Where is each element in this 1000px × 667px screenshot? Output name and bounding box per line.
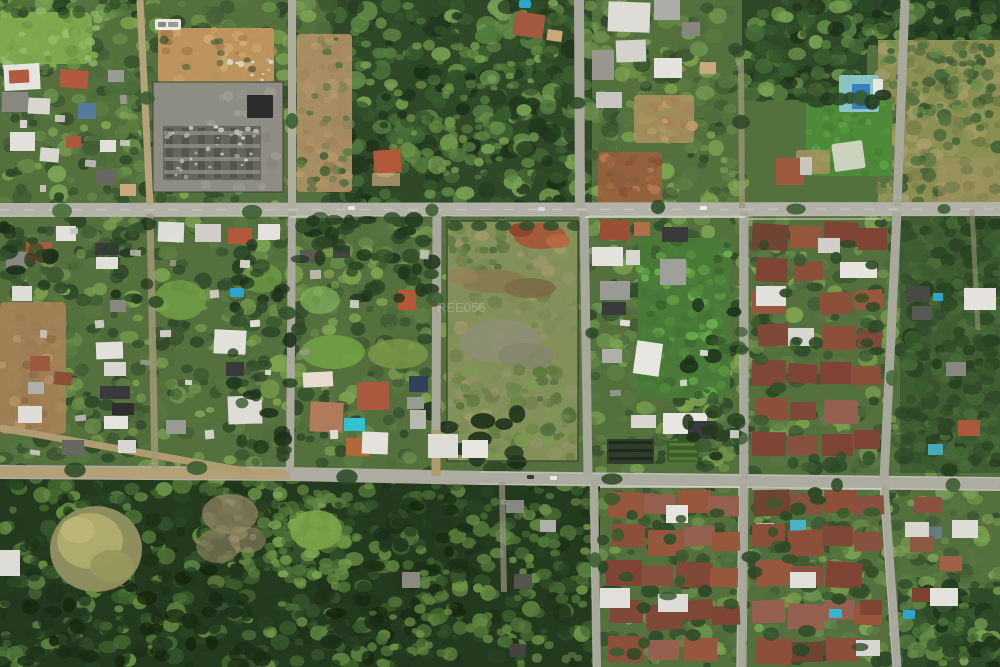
svg-text:REE056: REE056 [437,300,485,315]
